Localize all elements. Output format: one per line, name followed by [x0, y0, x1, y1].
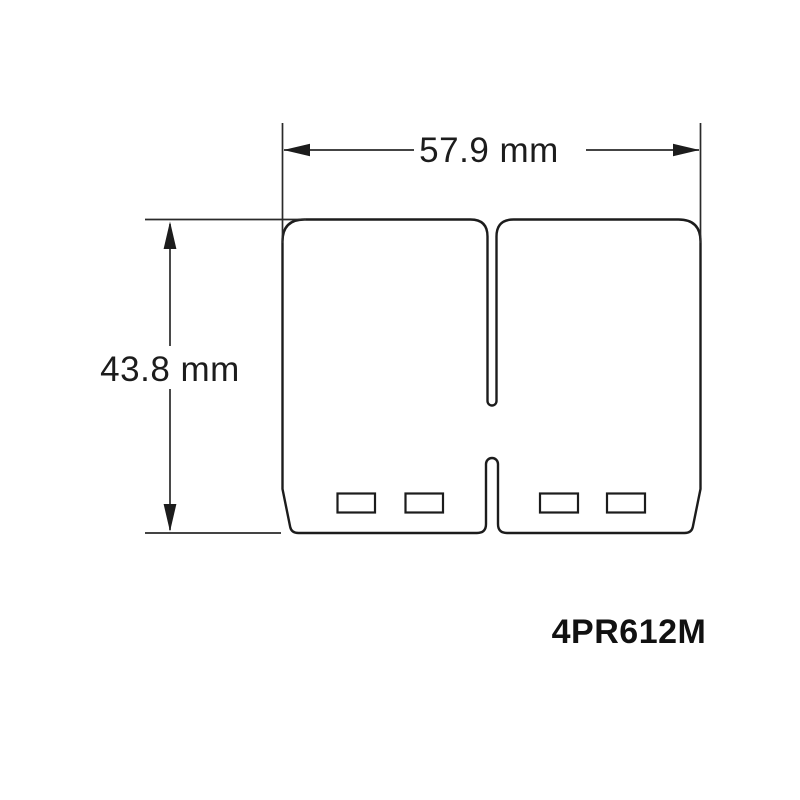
vent-slot-4 [607, 494, 645, 513]
vent-slot-1 [338, 494, 376, 513]
arrow-up-icon [164, 222, 177, 250]
petal-outline [283, 220, 701, 534]
part-number-label: 4PR612M [552, 613, 707, 651]
arrow-left-icon [284, 144, 311, 156]
width-dimension-label: 57.9 mm [419, 131, 559, 170]
arrow-right-icon [673, 144, 700, 156]
reed-petal-dimension-drawing: 57.9 mm 43.8 mm 4PR612M [0, 0, 800, 800]
petal-outline-group [283, 220, 701, 534]
technical-drawing-page: 57.9 mm 43.8 mm 4PR612M [0, 0, 800, 800]
arrow-down-icon [164, 504, 177, 532]
vent-slots-group [338, 494, 646, 513]
vent-slot-2 [406, 494, 444, 513]
height-dimension-label: 43.8 mm [100, 350, 240, 389]
vent-slot-3 [540, 494, 578, 513]
